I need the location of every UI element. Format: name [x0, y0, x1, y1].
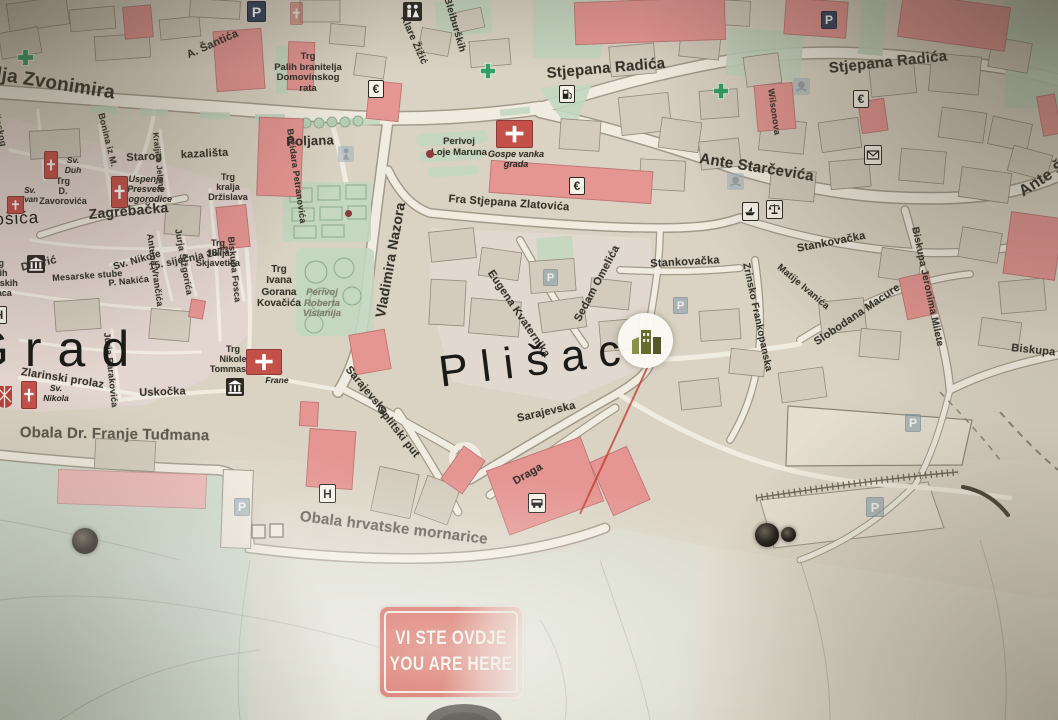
- sign-line-english: YOU ARE HERE: [390, 654, 513, 676]
- screw-icon: [781, 527, 796, 542]
- screw-icon: [72, 528, 98, 554]
- fuel-icon: [559, 86, 575, 102]
- church-icon: [111, 177, 128, 207]
- currency-icon: €: [368, 81, 384, 97]
- parking-faded-icon: P: [866, 498, 884, 516]
- church-icon: [21, 382, 37, 408]
- currency-icon: €: [853, 91, 869, 107]
- street-label: Fra Stjepana Zlatovića: [448, 193, 570, 213]
- street-label: Draga: [511, 461, 545, 487]
- pharmacy-icon: [16, 48, 35, 67]
- parking-icon: P: [821, 12, 837, 28]
- street-label: Uskočka: [139, 385, 186, 399]
- place-label: Trg Julija Skjavetića: [193, 238, 243, 268]
- mail-icon: [864, 146, 882, 164]
- scales-icon: [766, 201, 783, 218]
- street-label: Bonina iz M.: [96, 112, 119, 168]
- street-label: Vladimira Nazora: [372, 201, 408, 319]
- street-label: A. Šantića: [185, 28, 240, 61]
- place-label: Gospe vanka grada: [486, 149, 546, 169]
- map-labels-layer: lja ZvonimiraA. ŠantićaKlare ŽižićBleibu…: [0, 0, 1058, 720]
- sign-line-croatian: VI STE OVDJE: [395, 628, 506, 650]
- place-label: Perivoj Roberta Visianija: [296, 288, 348, 320]
- pharmacy-icon: [479, 62, 497, 80]
- bus-icon: [528, 494, 546, 512]
- place-label: Perivoj Loje Maruna: [430, 137, 488, 158]
- church-wide-icon: [246, 350, 282, 374]
- street-label: Sedam Omelića: [572, 243, 622, 323]
- street-label: Biskupa Je: [1011, 342, 1058, 360]
- street-label: Splitski put: [375, 404, 422, 460]
- parking-faded-icon: P: [673, 298, 688, 313]
- fountain-faded-icon: [727, 173, 744, 190]
- church-wide-icon: [496, 121, 533, 147]
- street-label: Stjepana Radića: [828, 48, 948, 77]
- street-label: Ante Š: [1016, 158, 1058, 201]
- wc-icon: [403, 2, 422, 21]
- monument-faded-icon: [338, 146, 354, 162]
- street-label: Obala hrvatske mornarice: [299, 508, 489, 548]
- district-label: Plišac: [436, 324, 636, 397]
- place-label: Trg palih šibenskih boraca: [0, 258, 28, 299]
- you-are-here-sign: VI STE OVDJE YOU ARE HERE: [380, 607, 522, 697]
- church-icon: [7, 197, 24, 213]
- pharmacy-icon: [712, 82, 730, 100]
- shield-icon: [0, 386, 12, 412]
- street-label: Stjepana Radića: [546, 55, 666, 82]
- district-label: Grad: [0, 320, 145, 378]
- street-label: Matije Ivanića: [775, 262, 832, 312]
- street-label: Biskupa Jeronima Milete: [909, 226, 945, 347]
- parking-faded-icon: P: [543, 270, 558, 285]
- street-label: Stankovačka: [796, 230, 866, 255]
- street-label: Obala Dr. Franje Tuđmana: [20, 424, 210, 444]
- street-label: Sarajevska: [516, 400, 577, 425]
- street-label: Starog kazališta: [126, 147, 229, 164]
- parking-icon: P: [247, 2, 266, 21]
- fountain-faded-icon: [793, 78, 810, 95]
- map-photo: lja ZvonimiraA. ŠantićaKlare ŽižićBleibu…: [0, 0, 1058, 720]
- street-label: Wilsonova: [766, 88, 782, 136]
- street-label: Zrinsko Frankopanska: [740, 262, 774, 373]
- boat-icon: [742, 203, 759, 220]
- sign-border: VI STE OVDJE YOU ARE HERE: [384, 611, 518, 693]
- street-label: lja Zvonimira: [0, 64, 116, 104]
- museum-icon: [226, 378, 244, 396]
- place-label: Trg Palih branitelja Domovinskog rata: [272, 52, 344, 95]
- dot-red-icon: [345, 210, 352, 217]
- church-faded-icon: [290, 3, 303, 24]
- hospital-icon: H: [319, 485, 336, 502]
- museum-icon: [27, 255, 45, 273]
- place-label: Sv. Nikola: [34, 384, 78, 403]
- screw-icon: [755, 523, 779, 547]
- dot-red-icon: [426, 150, 434, 158]
- church-icon: [44, 152, 58, 178]
- street-label: Ante Starčevića: [698, 150, 815, 185]
- hospital-icon: H: [0, 307, 7, 323]
- street-label: Slobodana Macure: [812, 282, 902, 348]
- place-label: Uspenja Presvete Bogorodice: [122, 174, 170, 204]
- place-label: Sv. Duh: [58, 156, 88, 175]
- street-label: Klare Žižić: [398, 14, 429, 66]
- currency-icon: €: [569, 178, 585, 194]
- street-label: Bleiburških: [441, 0, 467, 54]
- street-label: Stankovačka: [650, 254, 720, 270]
- place-label: Trg kralja Držislava: [200, 172, 256, 202]
- parking-faded-icon: P: [234, 499, 250, 515]
- parking-faded-icon: P: [905, 415, 921, 431]
